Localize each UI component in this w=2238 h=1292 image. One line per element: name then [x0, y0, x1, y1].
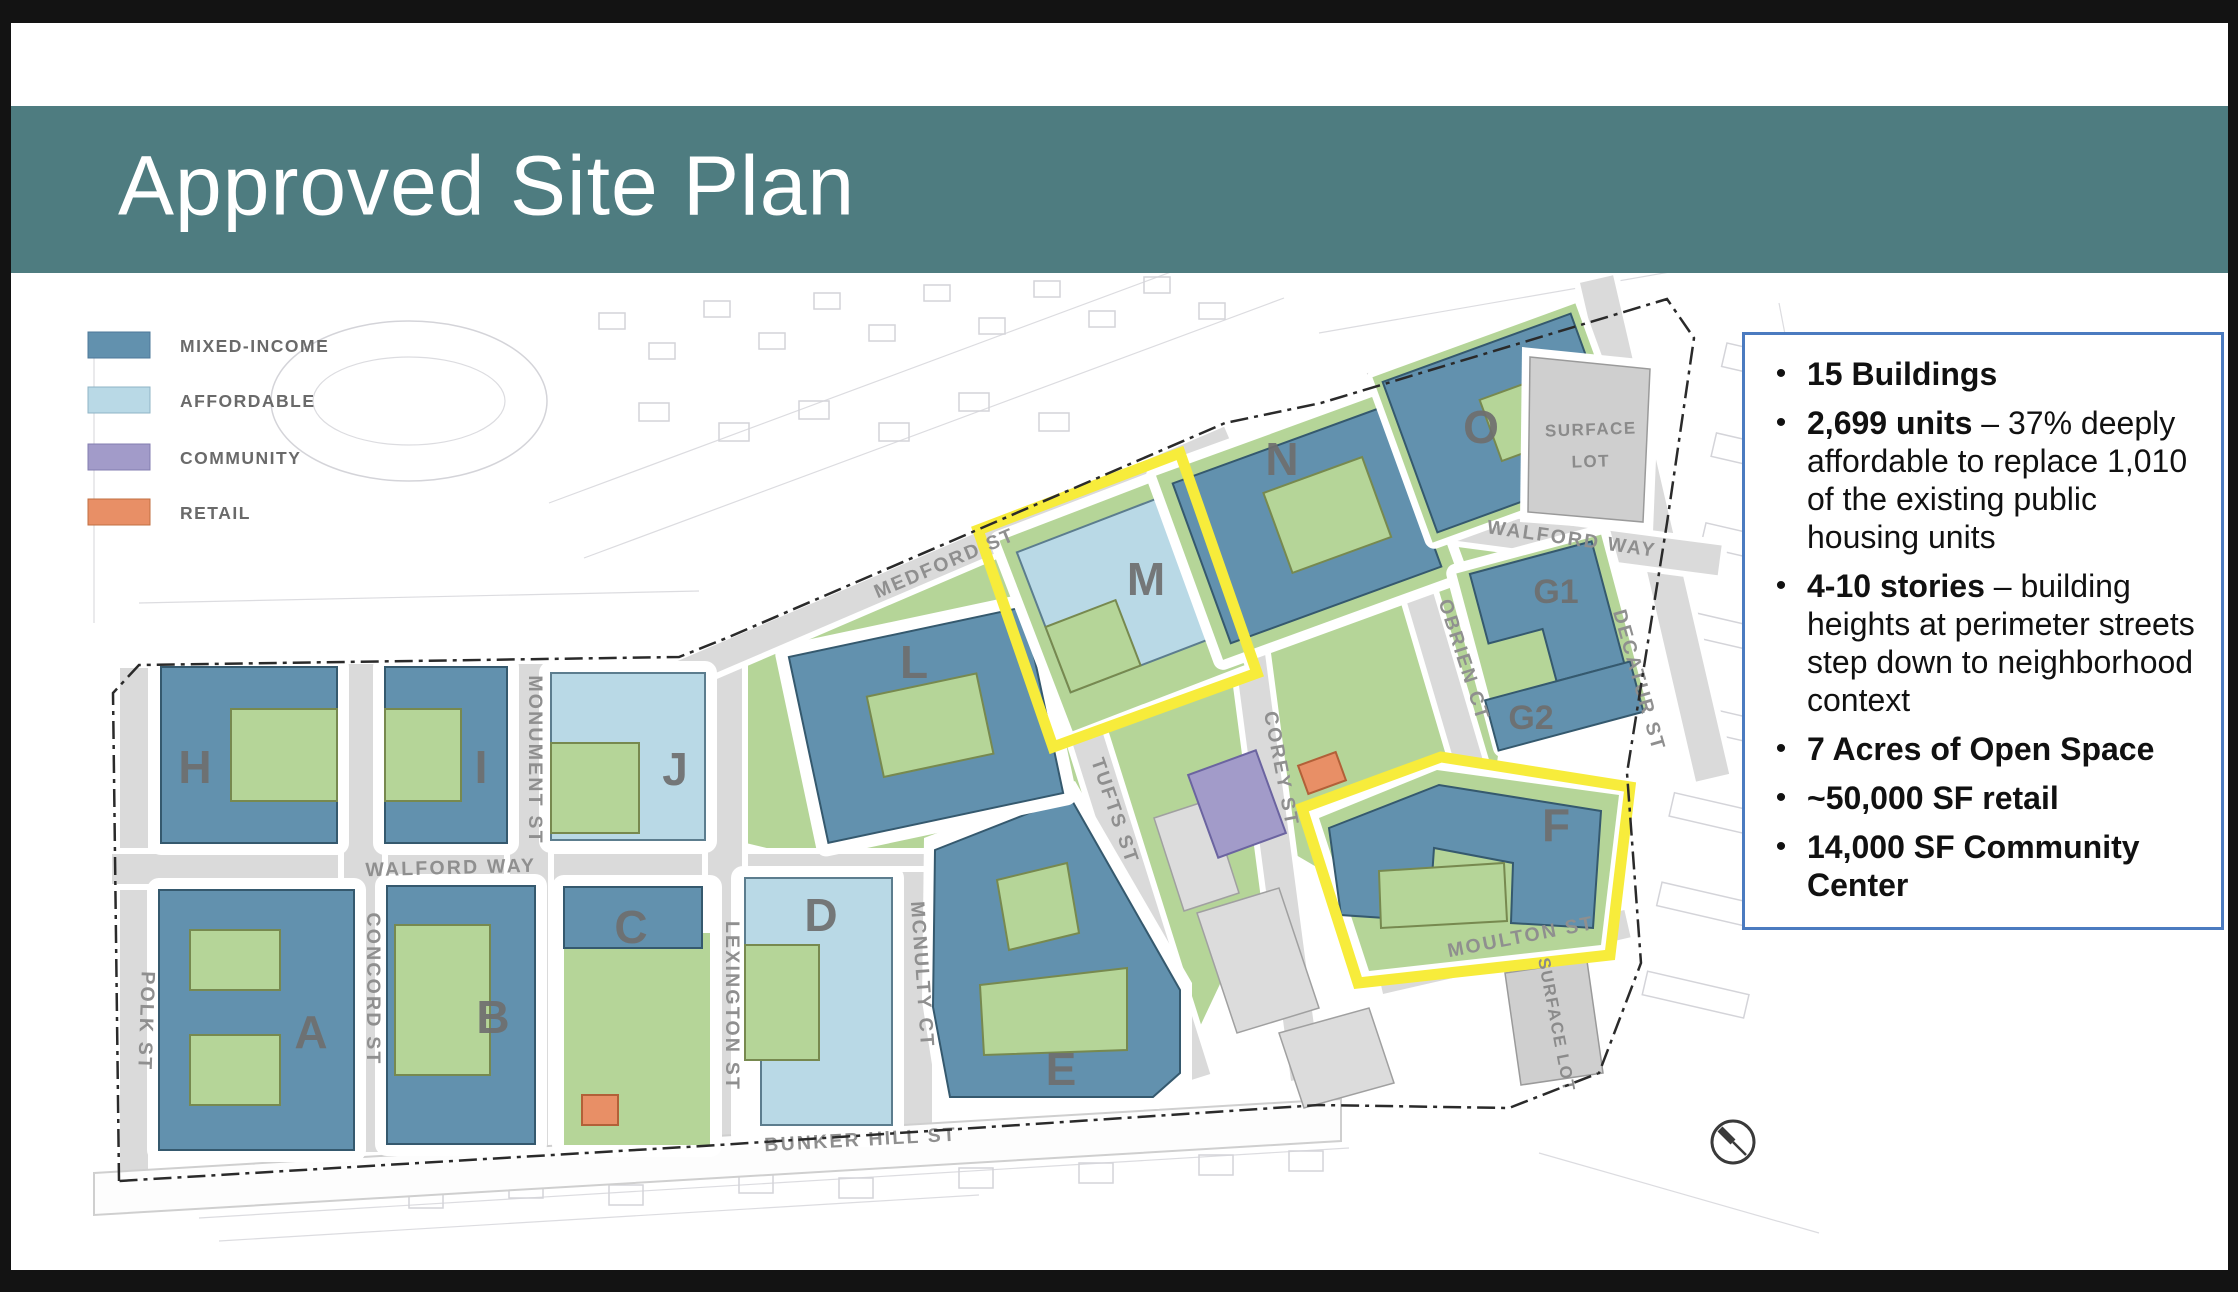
label-building-h: H [178, 741, 211, 793]
building-b [375, 874, 547, 1156]
site-plan-map: H I J A B C D E L M N O F G1 G2 [79, 273, 1831, 1243]
surface-lot-north [1520, 347, 1660, 532]
label-surface-lot-north-2: LOT [1571, 451, 1610, 471]
north-arrow-icon [1712, 1121, 1754, 1163]
fact-item: • 15 Buildings [1755, 355, 2197, 393]
fact-lead: 4-10 stories [1807, 568, 1985, 604]
building-j [539, 661, 717, 853]
fact-lead: 14,000 SF Community Center [1807, 829, 2140, 903]
fact-item: • 7 Acres of Open Space [1755, 730, 2197, 768]
fact-lead: 15 Buildings [1807, 356, 1997, 392]
bullet-icon: • [1755, 730, 1807, 768]
label-building-n: N [1265, 433, 1298, 485]
label-concord-st: CONCORD ST [362, 912, 384, 1065]
fact-lead: 7 Acres of Open Space [1807, 731, 2154, 767]
key-facts-list: • 15 Buildings • 2,699 units – 37% deepl… [1755, 355, 2197, 904]
fact-item: • 2,699 units – 37% deeply affordable to… [1755, 404, 2197, 556]
legend-swatch-community [88, 444, 150, 470]
page-title: Approved Site Plan [118, 137, 855, 234]
label-building-f: F [1542, 799, 1570, 851]
label-building-l: L [900, 636, 928, 688]
bullet-icon: • [1755, 779, 1807, 817]
label-walford-way-west: WALFORD WAY [365, 855, 536, 881]
presentation-screen: Approved Site Plan [0, 0, 2238, 1292]
label-building-b: B [476, 991, 509, 1043]
fact-item: • ~50,000 SF retail [1755, 779, 2197, 817]
bullet-icon: • [1755, 404, 1807, 556]
label-building-g2: G2 [1508, 699, 1553, 737]
legend-label-affordable: AFFORDABLE [180, 391, 316, 411]
bullet-icon: • [1755, 828, 1807, 904]
legend-swatch-retail [88, 499, 150, 525]
label-polk-st: POLK ST [133, 971, 158, 1072]
label-surface-lot-north-1: SURFACE [1545, 418, 1637, 440]
retail-space-c [582, 1095, 618, 1125]
fact-lead: ~50,000 SF retail [1807, 780, 2059, 816]
legend-swatch-mixed-income [88, 332, 150, 358]
building-i [373, 655, 519, 855]
label-building-m: M [1127, 553, 1165, 605]
label-building-c: C [614, 901, 647, 953]
label-building-i: I [475, 741, 488, 793]
label-building-e: E [1046, 1043, 1077, 1095]
key-facts-panel: • 15 Buildings • 2,699 units – 37% deepl… [1742, 332, 2224, 930]
label-lexington-st: LEXINGTON ST [721, 921, 743, 1091]
legend-label-community: COMMUNITY [180, 448, 301, 468]
slide: Approved Site Plan [11, 23, 2228, 1270]
legend-label-retail: RETAIL [180, 503, 251, 523]
bullet-icon: • [1755, 355, 1807, 393]
label-building-d: D [804, 889, 837, 941]
label-building-j: J [662, 743, 688, 795]
legend-label-mixed-income: MIXED-INCOME [180, 336, 329, 356]
label-building-g1: G1 [1533, 573, 1578, 611]
title-bar: Approved Site Plan [11, 106, 2228, 273]
fact-item: • 4-10 stories – building heights at per… [1755, 567, 2197, 719]
label-building-o: O [1463, 401, 1499, 453]
building-a [147, 878, 366, 1162]
fact-lead: 2,699 units [1807, 405, 1972, 441]
fact-item: • 14,000 SF Community Center [1755, 828, 2197, 904]
legend-swatch-affordable [88, 387, 150, 413]
label-building-a: A [294, 1006, 327, 1058]
bullet-icon: • [1755, 567, 1807, 719]
label-monument-st: MONUMENT ST [524, 675, 546, 844]
